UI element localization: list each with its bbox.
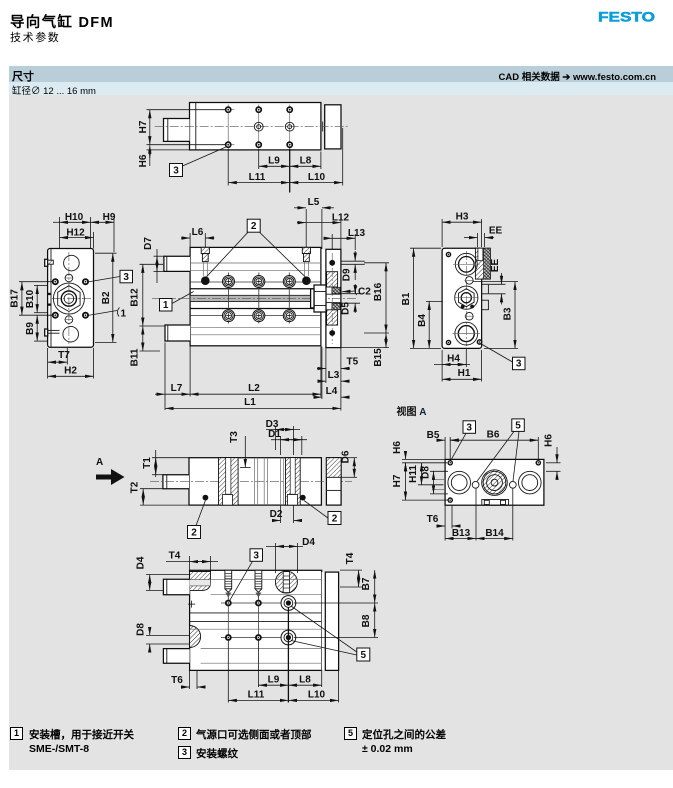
svg-text:L6: L6 xyxy=(192,227,204,238)
svg-text:D1: D1 xyxy=(268,429,281,440)
svg-text:5: 5 xyxy=(515,420,521,431)
svg-text:EE: EE xyxy=(490,259,501,273)
svg-text:L3: L3 xyxy=(328,370,340,381)
svg-text:B15: B15 xyxy=(373,348,384,367)
svg-text:5: 5 xyxy=(361,650,367,661)
svg-text:T6: T6 xyxy=(427,514,439,525)
svg-text:B1: B1 xyxy=(401,292,412,305)
svg-text:B11: B11 xyxy=(129,348,140,366)
svg-text:T5: T5 xyxy=(347,357,359,368)
svg-text:B3: B3 xyxy=(502,307,513,320)
svg-text:L4: L4 xyxy=(326,386,338,397)
svg-text:L9: L9 xyxy=(268,156,280,167)
svg-text:L13: L13 xyxy=(348,228,366,239)
svg-text:B14: B14 xyxy=(485,528,504,539)
svg-text:H1: H1 xyxy=(458,368,471,379)
svg-text:L10: L10 xyxy=(308,690,326,701)
svg-text:2: 2 xyxy=(191,527,197,538)
svg-text:H2: H2 xyxy=(64,366,77,377)
svg-text:3: 3 xyxy=(466,422,472,433)
svg-text:L5: L5 xyxy=(308,197,320,208)
svg-text:H7: H7 xyxy=(138,120,149,133)
svg-text:2: 2 xyxy=(251,221,257,232)
svg-text:L1: L1 xyxy=(244,397,256,408)
svg-text:D5: D5 xyxy=(340,302,351,315)
svg-text:T4: T4 xyxy=(169,550,181,561)
svg-text:T7: T7 xyxy=(58,350,70,361)
svg-text:B4: B4 xyxy=(417,314,428,327)
svg-text:T3: T3 xyxy=(229,431,240,443)
svg-text:B13: B13 xyxy=(452,528,471,539)
svg-text:L9: L9 xyxy=(268,674,280,685)
svg-text:1: 1 xyxy=(121,309,127,320)
svg-text:D9: D9 xyxy=(341,268,352,281)
svg-text:3: 3 xyxy=(123,272,129,283)
svg-text:T2: T2 xyxy=(129,481,140,493)
svg-text:B12: B12 xyxy=(129,288,140,307)
svg-text:3: 3 xyxy=(173,165,179,176)
svg-text:3: 3 xyxy=(516,359,522,370)
svg-text:2: 2 xyxy=(332,513,338,524)
svg-text:T4: T4 xyxy=(345,552,356,564)
svg-text:B8: B8 xyxy=(361,614,372,627)
svg-text:H6: H6 xyxy=(544,434,555,447)
svg-text:T6: T6 xyxy=(171,675,183,686)
svg-text:D6: D6 xyxy=(340,450,351,463)
svg-text:H7: H7 xyxy=(392,474,403,487)
svg-text:H12: H12 xyxy=(66,227,85,238)
svg-text:D3: D3 xyxy=(266,419,279,430)
svg-text:H6: H6 xyxy=(392,441,403,454)
svg-text:B10: B10 xyxy=(25,289,36,308)
svg-text:H9: H9 xyxy=(103,212,116,223)
svg-text:L2: L2 xyxy=(248,383,260,394)
svg-text:B7: B7 xyxy=(361,577,372,590)
svg-text:D8: D8 xyxy=(421,466,432,479)
svg-text:3: 3 xyxy=(253,550,259,561)
svg-text:L11: L11 xyxy=(248,690,265,701)
svg-text:D8: D8 xyxy=(136,623,147,636)
svg-text:B17: B17 xyxy=(10,289,21,308)
svg-text:H3: H3 xyxy=(456,212,469,223)
svg-text:A: A xyxy=(96,457,103,468)
svg-text:D4: D4 xyxy=(302,537,315,548)
svg-text:H11: H11 xyxy=(408,465,419,483)
svg-text:EE: EE xyxy=(489,226,503,237)
svg-text:L8: L8 xyxy=(299,674,311,685)
svg-text:L12: L12 xyxy=(332,212,350,223)
svg-text:L8: L8 xyxy=(300,156,312,167)
svg-text:B9: B9 xyxy=(25,322,36,335)
svg-text:T1: T1 xyxy=(142,457,153,469)
svg-text:D7: D7 xyxy=(143,237,154,250)
svg-text:H6: H6 xyxy=(138,154,149,167)
svg-text:L7: L7 xyxy=(171,383,183,394)
svg-text:C2: C2 xyxy=(358,287,371,298)
svg-text:H10: H10 xyxy=(65,212,84,223)
svg-text:D2: D2 xyxy=(270,509,283,520)
svg-text:B6: B6 xyxy=(487,430,500,441)
svg-text:H4: H4 xyxy=(447,353,460,364)
svg-text:D4: D4 xyxy=(136,556,147,569)
svg-text:L10: L10 xyxy=(308,172,326,183)
svg-text:B2: B2 xyxy=(101,291,112,304)
svg-text:B5: B5 xyxy=(427,430,440,441)
svg-text:视图 A: 视图 A xyxy=(397,405,427,418)
svg-text:1: 1 xyxy=(163,300,169,311)
svg-text:L11: L11 xyxy=(249,172,266,183)
svg-text:B16: B16 xyxy=(373,282,384,301)
